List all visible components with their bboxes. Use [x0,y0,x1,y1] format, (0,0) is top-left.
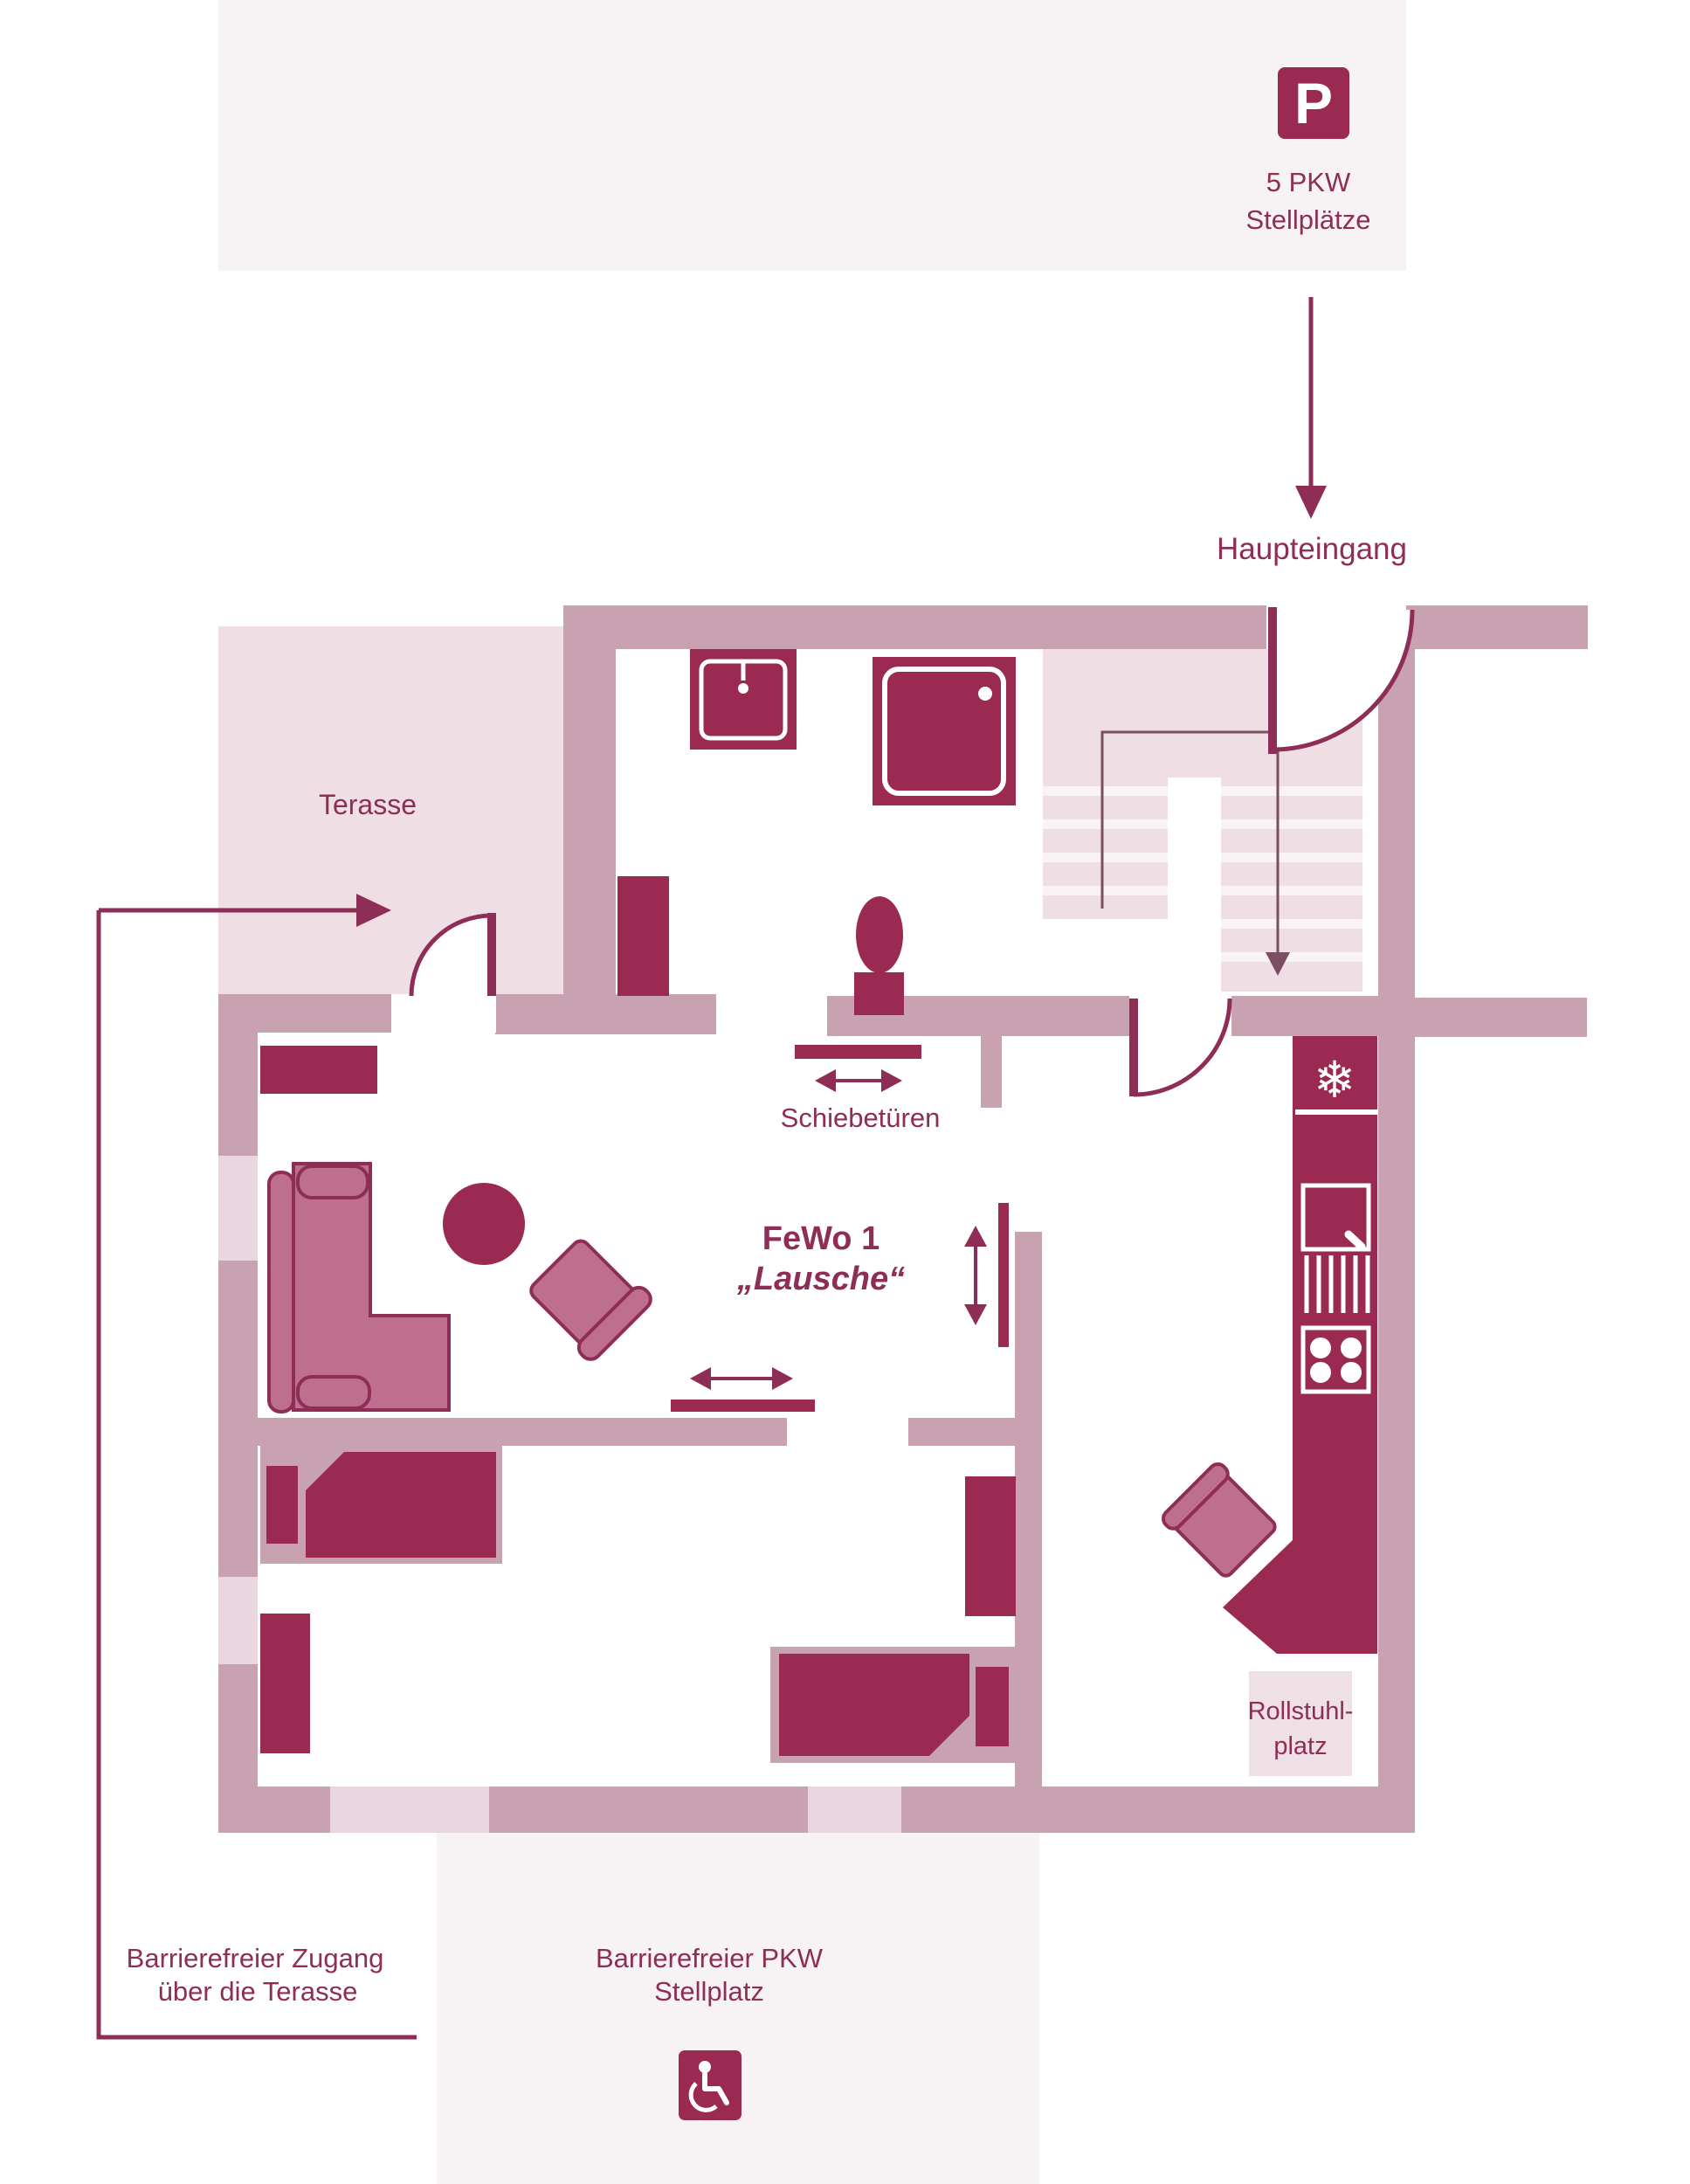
wall-top-right [1406,605,1588,649]
wall-terrace-b [495,994,716,1034]
wall-left [218,994,258,1833]
accessible-parking-line1: Barrierefreier PKW [596,1943,824,1973]
bed-blanket [306,1452,496,1558]
door-leaf [487,913,496,996]
stairs-lower-landing [1043,919,1168,992]
wheelchair-space-line2: platz [1273,1732,1327,1760]
toilet [854,896,904,1015]
window-bottom-2 [808,1787,901,1833]
sliding-door-hall [964,1203,1009,1347]
wall-living-bottom-b [908,1418,1015,1446]
window-bottom-1 [330,1787,489,1833]
wheelchair-icon [679,2050,742,2120]
floor-plan-page: ❄ [0,0,1690,2184]
wall-right [1378,649,1415,1833]
shower-drain [978,687,992,701]
sofa-seat [293,1164,449,1410]
wall-bedroom2-kitchen [1015,1232,1042,1787]
sliding-door-bath [795,1045,921,1092]
kitchen-chair [1160,1461,1281,1582]
stairs-center-void [1168,778,1221,992]
sofa-backrest [269,1172,293,1412]
wall-hall-right [1231,996,1378,1036]
bed-blanket [779,1654,969,1756]
bedroom-1 [260,1444,502,1753]
entrance-arrow [1295,297,1327,519]
sliding-door-label: Schiebetüren [781,1102,941,1133]
wardrobe [965,1476,1016,1616]
apartment-name-line2: „Lausche“ [736,1261,905,1297]
wall-porch-arm [1413,998,1587,1037]
entrance-label: Haupteingang [1217,532,1407,566]
kitchen: ❄ [1160,1036,1377,1654]
sink [690,649,797,750]
accessible-parking-block [437,1833,1039,2184]
wheelchair-space-line1: Rollstuhl- [1248,1697,1354,1725]
terrace-access-line1: Barrierefreier Zugang [127,1943,384,1973]
accessible-parking-line2: Stellplatz [654,1976,764,2007]
door-leaf [1129,999,1138,1096]
window-left-1 [218,1156,258,1261]
wardrobe [260,1614,310,1753]
shower [873,657,1016,805]
bedroom-2 [770,1476,1016,1763]
bathroom [617,649,1016,1015]
floor-plan: ❄ [0,0,1690,2184]
door-leaf [1268,607,1277,754]
living-room [260,1046,655,1412]
sofa-cushion-bottom [298,1377,369,1408]
bath-cabinet [617,876,669,996]
parking-sign: P [1278,67,1349,139]
bed-pillow [266,1466,298,1544]
wall-living-bottom-a [258,1418,787,1446]
sliding-door-bedroom2 [671,1367,815,1412]
terrace-label: Terasse [319,789,417,820]
wall-stub [981,1036,1002,1108]
snowflake-icon: ❄ [1314,1052,1356,1109]
sideboard [260,1046,377,1094]
window-left-2 [218,1577,258,1664]
coffee-table [443,1183,525,1265]
sofa-cushion-top [298,1166,368,1198]
armchair [522,1231,654,1363]
wall-top-left [563,605,1266,649]
parking-sign-letter: P [1294,71,1333,135]
hallway-door [1129,996,1231,1096]
parking-count-line1: 5 PKW [1266,167,1351,197]
terrace-access-line2: über die Terasse [158,1976,358,2007]
sofa [269,1164,449,1412]
wall-bathroom-left [563,649,616,996]
bed-pillow [976,1667,1009,1746]
parking-area-block [218,0,1406,271]
parking-count-line2: Stellplätze [1245,204,1370,235]
apartment-name-line1: FeWo 1 [762,1220,879,1257]
